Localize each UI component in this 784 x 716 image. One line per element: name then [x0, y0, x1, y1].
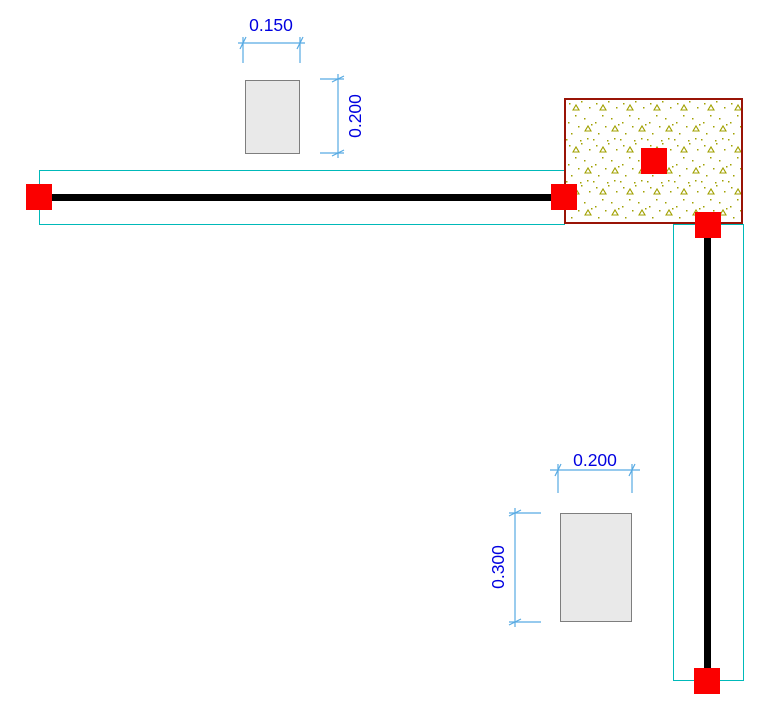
dimension-bottom-height: 0.300	[488, 508, 541, 627]
selection-handle-vbeam-start[interactable]	[695, 212, 721, 238]
dimension-ticks	[555, 464, 635, 476]
selection-handle-vbeam-end[interactable]	[694, 668, 720, 694]
dimension-top-height: 0.200	[320, 74, 365, 158]
dimension-label-top-width[interactable]: 0.150	[249, 15, 293, 35]
vertical-beam-axis[interactable]	[704, 225, 711, 681]
selection-handle-hbeam-start[interactable]	[26, 184, 52, 210]
dimension-label-bottom-width[interactable]: 0.200	[573, 450, 617, 470]
dimension-extension-lines	[243, 37, 300, 63]
dimension-label-bottom-height[interactable]: 0.300	[488, 545, 508, 589]
dimension-ticks	[332, 76, 344, 156]
dimension-extension-lines	[558, 464, 632, 493]
selection-handle-column-center[interactable]	[641, 148, 667, 174]
dimension-bottom-width: 0.200	[550, 450, 640, 493]
dimension-ticks	[240, 37, 303, 49]
selection-handle-hbeam-end[interactable]	[551, 184, 577, 210]
top-cross-section[interactable]	[245, 80, 300, 154]
dimension-extension-lines	[320, 79, 344, 153]
dimension-ticks	[509, 510, 521, 625]
cad-canvas: 0.150 0.200 0.200 0.300	[0, 0, 784, 716]
dimension-top-width: 0.150	[238, 15, 305, 63]
horizontal-beam-axis[interactable]	[40, 194, 565, 201]
dimension-label-top-height[interactable]: 0.200	[345, 94, 365, 138]
bottom-cross-section[interactable]	[560, 513, 632, 622]
dimension-extension-lines	[509, 513, 541, 622]
